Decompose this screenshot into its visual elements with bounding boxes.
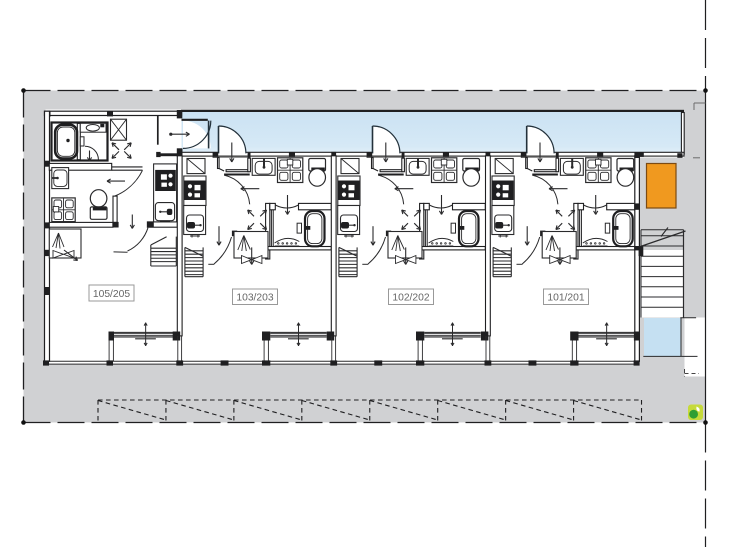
svg-text:101/201: 101/201 [547, 293, 584, 304]
svg-text:105/205: 105/205 [93, 289, 130, 300]
svg-text:102/202: 102/202 [392, 293, 429, 304]
svg-text:103/203: 103/203 [236, 293, 273, 304]
